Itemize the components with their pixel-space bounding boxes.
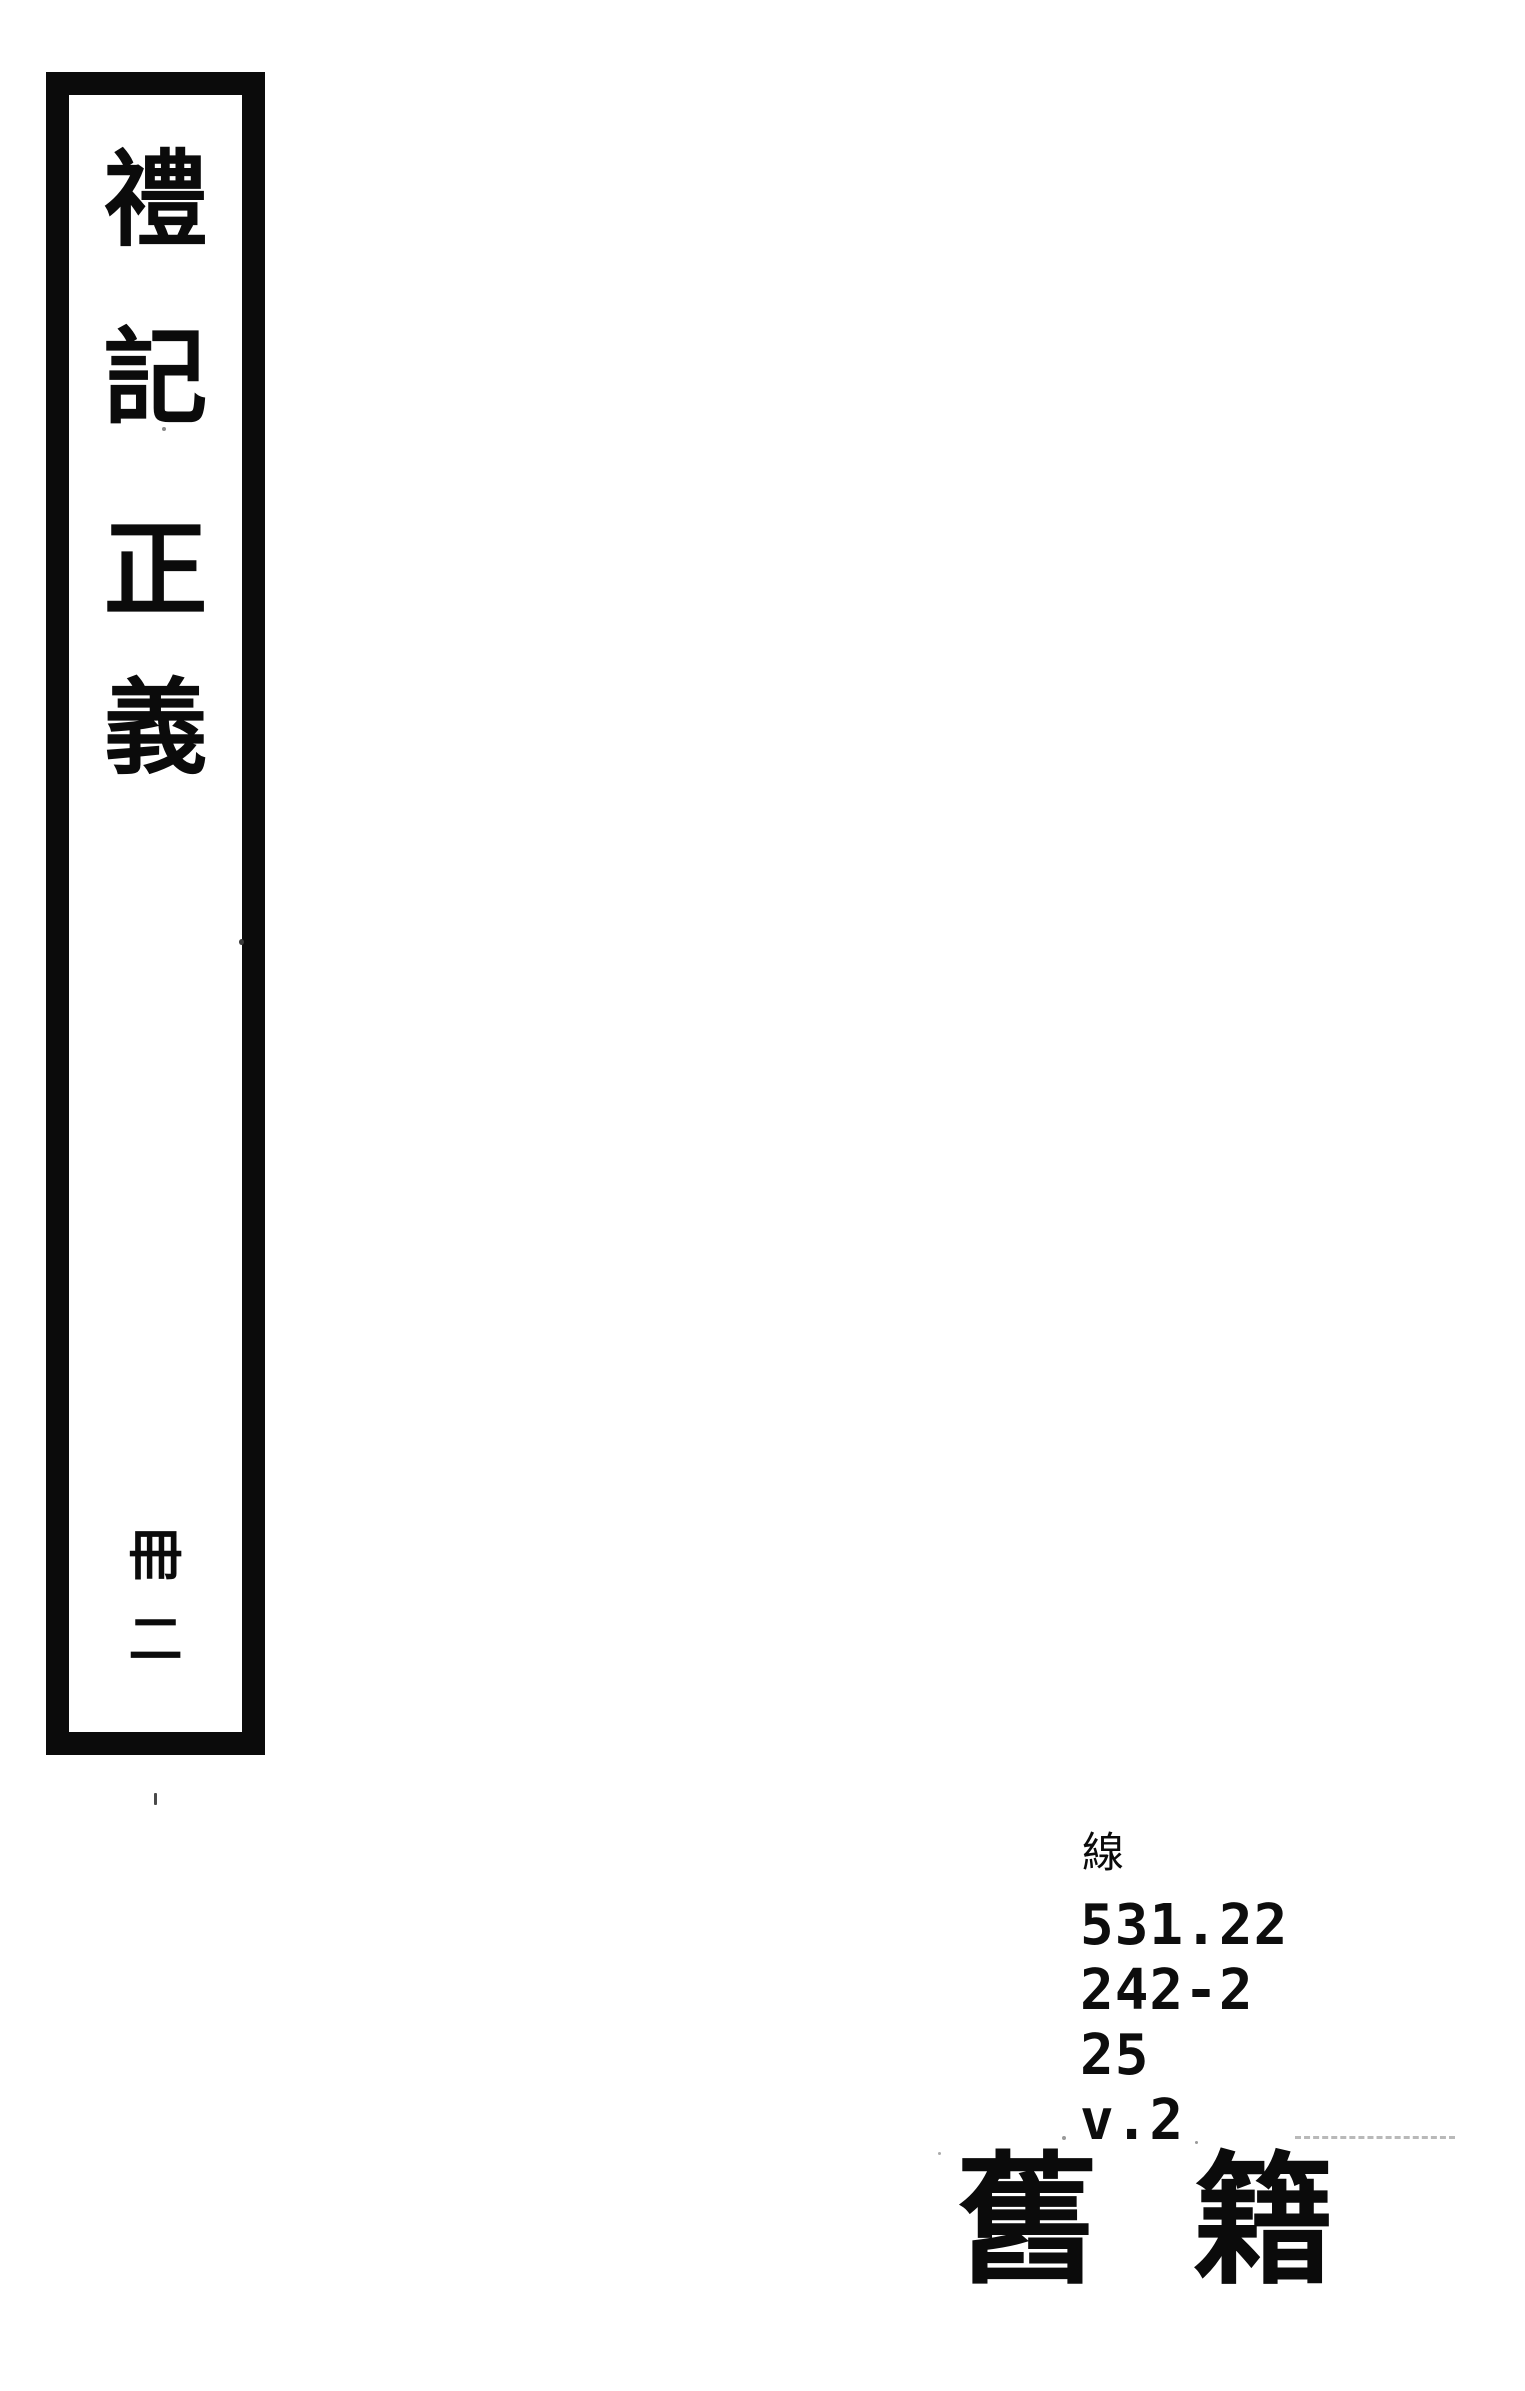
category-label-char: 籍 <box>1193 2138 1335 2304</box>
category-label: 舊籍 <box>956 2150 1335 2292</box>
scan-speck <box>239 939 244 945</box>
call-number-line: 531.22 <box>1080 1893 1288 1958</box>
spine-title-char: 記 <box>103 326 207 430</box>
category-label-char: 舊 <box>956 2138 1098 2304</box>
scan-speck <box>938 2152 941 2155</box>
call-number-script-label: 線 <box>1082 1832 1124 1874</box>
scan-speck <box>1195 2141 1198 2144</box>
book-spine-frame: 禮 記 正 義 冊 二 <box>46 72 265 1755</box>
spine-title-char: 正 <box>103 518 207 622</box>
spine-volume-char: 冊 <box>129 1528 183 1582</box>
call-number-line: 242-2 <box>1080 1958 1288 2023</box>
scanned-book-cover-page: 禮 記 正 義 冊 二 線 531.22 242-2 25 v.2 舊籍 <box>0 0 1525 2391</box>
spine-volume-char: 二 <box>129 1612 183 1666</box>
spine-title-char: 禮 <box>103 148 207 252</box>
spine-title-char: 義 <box>103 676 207 780</box>
scan-speck <box>154 1793 157 1805</box>
call-number-line: 25 <box>1080 2023 1288 2088</box>
scan-speck <box>1062 2136 1066 2140</box>
call-number-lines: 531.22 242-2 25 v.2 <box>1080 1893 1288 2153</box>
scan-artifact-dashes <box>1295 2136 1455 2139</box>
scan-speck <box>162 427 166 431</box>
